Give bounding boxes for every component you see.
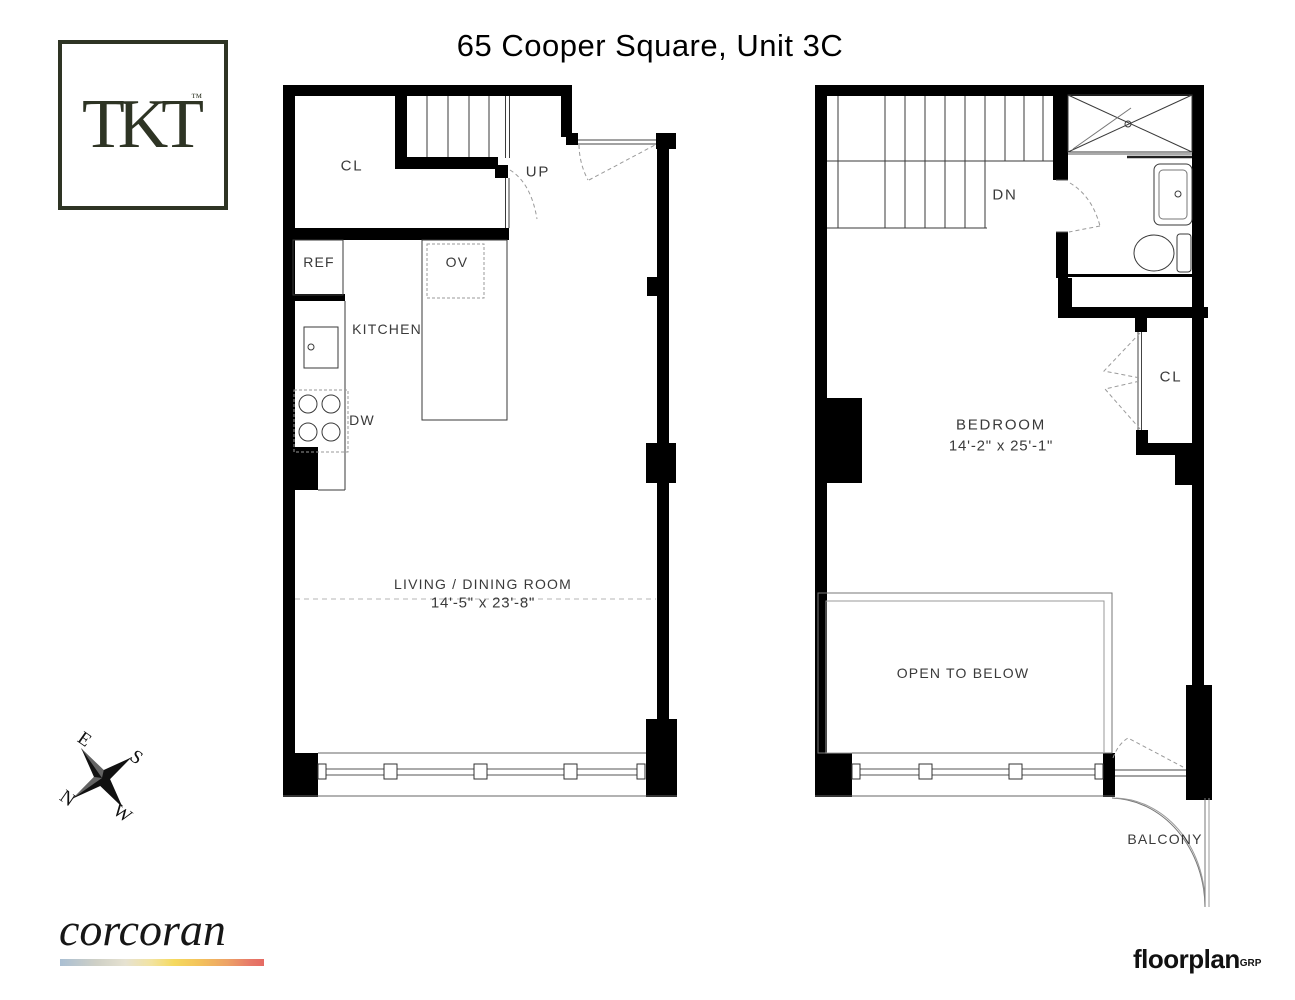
label-closet-upper: CL: [1160, 369, 1183, 386]
tkt-logo: TKT ™: [58, 40, 228, 210]
label-stairs-down: DN: [992, 187, 1017, 204]
tkt-logo-text: TKT: [82, 90, 204, 160]
oven: [427, 244, 484, 298]
kitchen-sink: [304, 327, 338, 368]
label-oven: OV: [446, 254, 469, 270]
label-refrigerator: REF: [303, 254, 335, 270]
floor-plan-lower: [283, 85, 677, 797]
corcoran-gradient-bar: [60, 959, 264, 966]
stove-burners: [294, 390, 348, 452]
stairs-down: [827, 96, 1053, 228]
entry-door: [578, 140, 656, 180]
label-bedroom-dimensions: 14'-2" x 25'-1": [949, 438, 1053, 455]
bathroom-sink: [1154, 164, 1192, 225]
label-open-to-below: OPEN TO BELOW: [897, 665, 1030, 681]
label-kitchen: KITCHEN: [352, 321, 422, 337]
floorplan-wordmark: floorplan: [1133, 944, 1240, 974]
label-living-dining-dimensions: 14'-5" x 23'-8": [431, 595, 535, 612]
floor-plan-upper: [815, 85, 1212, 907]
tkt-trademark: ™: [191, 92, 202, 104]
label-bedroom: BEDROOM: [956, 417, 1046, 434]
bifold-closet-doors: [1104, 332, 1142, 430]
page-title: 65 Cooper Square, Unit 3C: [457, 28, 843, 64]
floorplan-grp-logo: floorplanGRP: [1133, 944, 1261, 975]
label-stairs-up: UP: [526, 164, 550, 181]
bathroom-door-swing: [1070, 183, 1100, 226]
compass-rose: [52, 728, 152, 828]
label-balcony: BALCONY: [1127, 831, 1202, 847]
floorplan-wordmark-suffix: GRP: [1240, 958, 1262, 969]
floorplan-page: 65 Cooper Square, Unit 3C TKT ™ CL UP RE…: [0, 0, 1295, 1000]
balcony-railing: [1112, 798, 1209, 907]
shower: [1068, 95, 1192, 152]
balcony-door: [1113, 738, 1186, 776]
label-dishwasher: DW: [349, 412, 375, 428]
label-closet-lower: CL: [341, 158, 364, 175]
toilet: [1134, 234, 1191, 272]
label-living-dining-room: LIVING / DINING ROOM: [394, 576, 572, 592]
bathroom: [1056, 95, 1192, 272]
kitchen-fixtures: [293, 240, 507, 490]
window-wall-lower: [283, 753, 677, 796]
walls-lower: [283, 85, 677, 797]
corcoran-logo: corcoran: [59, 903, 226, 956]
window-wall-upper: [815, 753, 1115, 796]
